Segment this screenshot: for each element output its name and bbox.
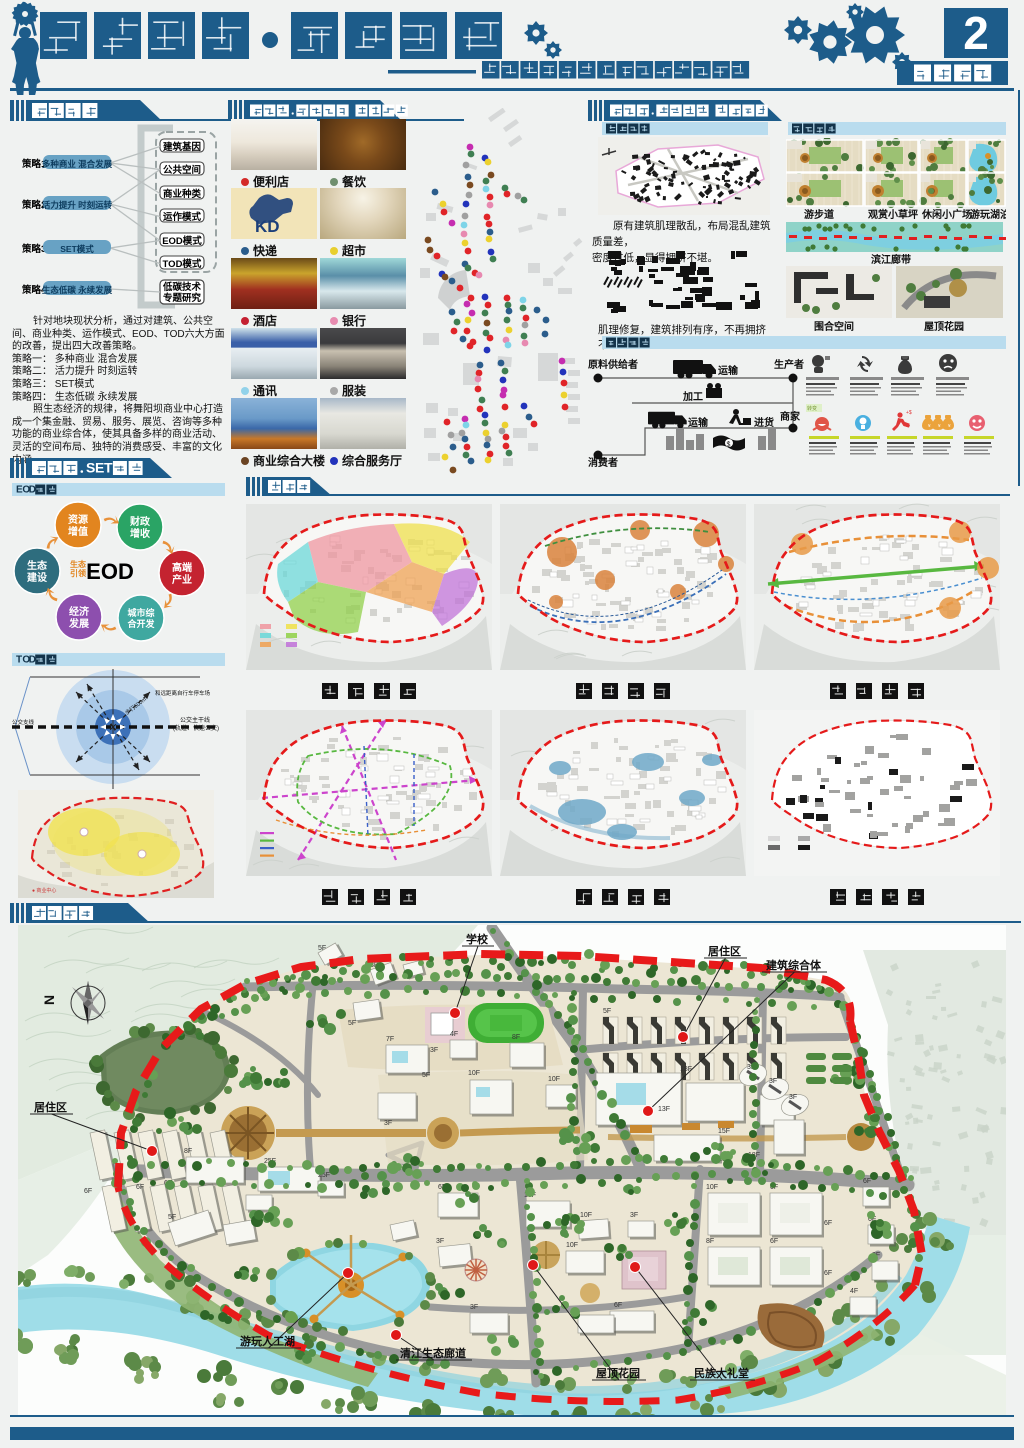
svg-text:3F: 3F <box>430 1047 438 1054</box>
svg-text:公共空间: 公共空间 <box>163 164 201 176</box>
svg-text:运输: 运输 <box>688 416 709 429</box>
svg-text:TOD模式: TOD模式 <box>163 258 202 270</box>
svg-text:运输: 运输 <box>718 364 739 377</box>
svg-text:10F: 10F <box>548 1076 560 1083</box>
svg-text:进货: 进货 <box>754 416 774 429</box>
svg-text:经济: 经济 <box>69 605 90 618</box>
svg-text:5F: 5F <box>603 1008 611 1015</box>
svg-text:N: N <box>41 995 57 1005</box>
svg-text:D: D <box>29 485 36 496</box>
svg-text:E: E <box>95 460 104 476</box>
svg-text:围合空间: 围合空间 <box>814 320 854 333</box>
svg-text:3F: 3F <box>789 1094 797 1101</box>
svg-text:生态: 生态 <box>70 559 86 569</box>
svg-text:原料供给者: 原料供给者 <box>588 358 638 371</box>
svg-text:屋顶花园: 屋顶花园 <box>924 320 964 333</box>
svg-text:游玩人工湖: 游玩人工湖 <box>240 1334 295 1348</box>
svg-text:城市综: 城市综 <box>127 607 154 618</box>
svg-text:生态: 生态 <box>27 559 47 572</box>
svg-text:活力提升 时刻运转: 活力提升 时刻运转 <box>42 200 113 210</box>
svg-text:学校: 学校 <box>466 932 489 946</box>
svg-text:5F: 5F <box>348 1020 356 1027</box>
svg-text:6F: 6F <box>863 1178 871 1185</box>
svg-text:公交主干线: 公交主干线 <box>180 716 210 724</box>
svg-text:6F: 6F <box>824 1270 832 1277</box>
svg-text:SET模式: SET模式 <box>60 244 94 254</box>
svg-text:多种商业 混合发展: 多种商业 混合发展 <box>42 159 113 169</box>
svg-text:3F: 3F <box>384 1120 392 1127</box>
svg-text:T: T <box>16 655 22 666</box>
svg-text:建筑基因: 建筑基因 <box>162 141 201 153</box>
svg-text:增收: 增收 <box>130 527 150 540</box>
svg-text:EOD模式: EOD模式 <box>162 235 202 247</box>
svg-text:6F: 6F <box>614 1302 622 1309</box>
svg-text:5F: 5F <box>422 1072 430 1079</box>
svg-text:民族大礼堂: 民族大礼堂 <box>694 1366 749 1380</box>
svg-text:商业种类: 商业种类 <box>163 188 202 200</box>
svg-text:引领: 引领 <box>70 568 86 578</box>
svg-text:6F: 6F <box>824 1220 832 1227</box>
svg-text:10F: 10F <box>566 1242 578 1249</box>
svg-text:6F: 6F <box>770 1238 778 1245</box>
svg-text:4F: 4F <box>450 1031 458 1038</box>
svg-text:居住区: 居住区 <box>34 1100 67 1114</box>
svg-text:低碳技术: 低碳技术 <box>162 281 202 293</box>
svg-text:+$: +$ <box>906 410 912 416</box>
svg-text:观赏小草坪: 观赏小草坪 <box>868 208 918 221</box>
svg-text:和远距离自行车停车场: 和远距离自行车停车场 <box>155 689 211 697</box>
svg-text:增值: 增值 <box>68 525 88 538</box>
svg-text:18F: 18F <box>680 1066 692 1073</box>
svg-text:10F: 10F <box>468 1070 480 1077</box>
svg-text:屋顶花园: 屋顶花园 <box>596 1366 640 1380</box>
svg-text:公交支线: 公交支线 <box>12 718 35 726</box>
svg-text:D: D <box>29 655 36 666</box>
svg-text:(轨道、快速公交): (轨道、快速公交) <box>173 724 219 732</box>
svg-text:5F: 5F <box>318 945 326 952</box>
svg-text:运作模式: 运作模式 <box>163 211 202 223</box>
svg-text:生产者: 生产者 <box>774 358 804 371</box>
svg-text:财政: 财政 <box>129 515 151 528</box>
svg-text:居住区: 居住区 <box>708 944 741 958</box>
svg-text:10F: 10F <box>580 1212 592 1219</box>
svg-text:3F: 3F <box>630 1212 638 1219</box>
svg-text:3F: 3F <box>436 1238 444 1245</box>
svg-text:消费者: 消费者 <box>588 456 618 468</box>
svg-text:高端: 高端 <box>172 561 192 574</box>
svg-text:转变: 转变 <box>807 405 817 412</box>
svg-text:15F: 15F <box>718 1128 730 1135</box>
svg-text:游玩湖泊: 游玩湖泊 <box>970 208 1006 221</box>
svg-text:S: S <box>86 460 95 476</box>
svg-text:$: $ <box>727 442 731 449</box>
svg-text:8F: 8F <box>706 1238 714 1245</box>
svg-text:10F: 10F <box>706 1184 718 1191</box>
svg-text:● 商业中心: ● 商业中心 <box>32 887 56 894</box>
svg-text:8F: 8F <box>512 1034 520 1041</box>
svg-text:专题研究: 专题研究 <box>163 292 202 304</box>
svg-text:EOD: EOD <box>86 559 134 584</box>
svg-text:资源: 资源 <box>68 513 88 526</box>
svg-text:4F: 4F <box>850 1288 858 1295</box>
svg-text:加工: 加工 <box>682 390 703 403</box>
svg-text:3F: 3F <box>769 1078 777 1085</box>
svg-text:6F: 6F <box>84 1188 92 1195</box>
svg-text:游步道: 游步道 <box>804 208 834 221</box>
svg-text:5F: 5F <box>168 1214 176 1221</box>
svg-text:产业: 产业 <box>172 573 192 586</box>
svg-text:8F: 8F <box>184 1148 192 1155</box>
svg-text:策略3: 策略3 <box>21 243 46 255</box>
svg-text:3F: 3F <box>470 1304 478 1311</box>
svg-text:建设: 建设 <box>26 571 47 584</box>
svg-text:发展: 发展 <box>68 617 89 630</box>
svg-text:商家: 商家 <box>780 410 801 423</box>
svg-text:清江生态廊道: 清江生态廊道 <box>400 1346 466 1360</box>
svg-text:T: T <box>104 460 113 476</box>
svg-text:7F: 7F <box>386 1036 394 1043</box>
svg-text:13F: 13F <box>658 1106 670 1113</box>
svg-text:KD: KD <box>255 217 280 236</box>
svg-text:6F: 6F <box>136 1184 144 1191</box>
svg-text:生态低碳 永续发展: 生态低碳 永续发展 <box>42 285 113 295</box>
svg-text:合开发: 合开发 <box>127 618 155 629</box>
svg-text:滨江廊带: 滨江廊带 <box>871 253 911 266</box>
svg-text:休闲小广场: 休闲小广场 <box>921 208 972 221</box>
svg-text:建筑综合体: 建筑综合体 <box>766 958 822 972</box>
